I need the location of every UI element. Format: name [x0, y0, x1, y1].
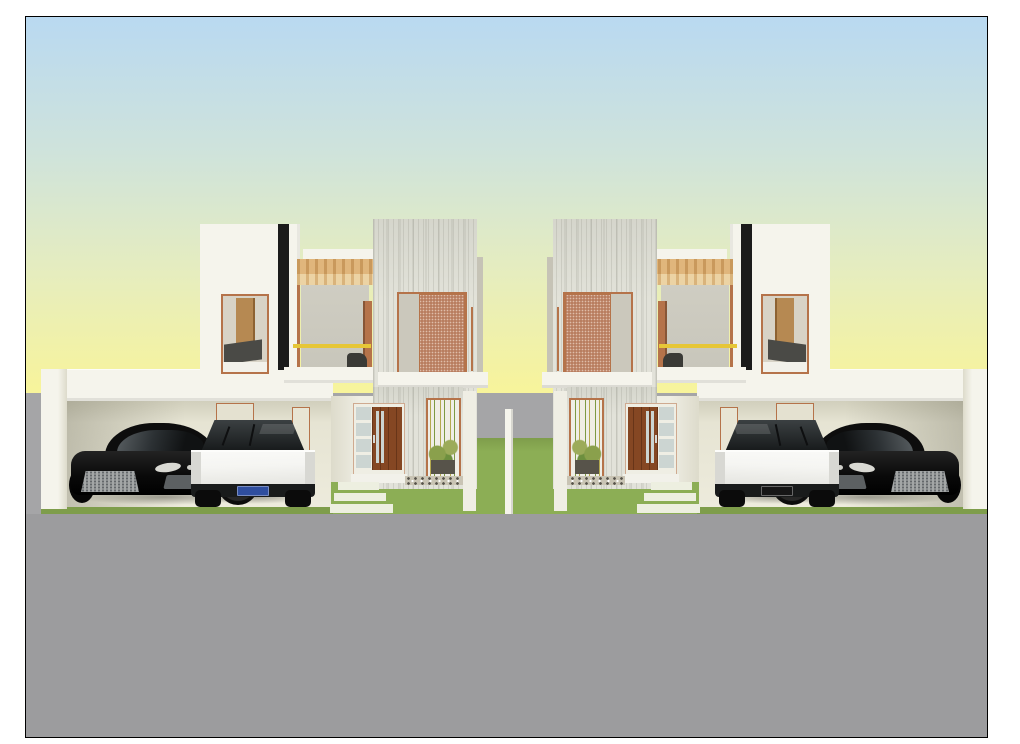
- intermediate-floor-slab: [542, 372, 652, 388]
- white-pickup-truck: [191, 416, 315, 507]
- stepping-pad: [330, 504, 393, 513]
- truck-wheel: [285, 490, 311, 507]
- side-copper-trim: [471, 307, 473, 371]
- bedroom-bed: [768, 339, 806, 364]
- truck-light-bar: [715, 450, 839, 452]
- pergola-cap-slab: [657, 249, 727, 259]
- perforated-copper-screen: [565, 294, 611, 374]
- pebble-strip: [405, 476, 471, 485]
- stepping-pad: [338, 482, 379, 490]
- bedroom-wardrobe: [236, 298, 254, 347]
- coupe-grille: [891, 471, 949, 492]
- side-return-wall-lower: [554, 391, 567, 511]
- balcony-floor-slab: [655, 367, 746, 383]
- bamboo-planter-window: [426, 398, 461, 480]
- tower-black-stripe: [278, 224, 289, 370]
- stepping-pad: [651, 482, 692, 490]
- planter-table: [575, 460, 599, 474]
- window-sill: [223, 362, 267, 372]
- truck-body-facet: [191, 450, 201, 486]
- pergola-timber-fascia: [297, 274, 373, 285]
- carport-side-wall: [963, 369, 988, 509]
- coupe-grille: [81, 471, 139, 492]
- truck-glass-highlight: [733, 424, 771, 434]
- carport-side-wall: [41, 369, 67, 509]
- side-copper-trim: [557, 307, 559, 371]
- pergola-timber-fascia: [657, 274, 733, 285]
- truck-body-facet: [829, 450, 839, 486]
- truck-wheel: [809, 490, 835, 507]
- truck-light-bar: [191, 450, 315, 452]
- bedroom-wardrobe: [775, 298, 793, 347]
- pergola-timber-slats: [657, 259, 733, 274]
- door-sidelight: [356, 407, 371, 470]
- balcony-yellow-railing: [659, 344, 737, 348]
- window-sill: [763, 362, 807, 372]
- bedroom-window: [221, 294, 269, 374]
- entry-door-assembly: [353, 403, 405, 475]
- door-glass-strip: [376, 411, 379, 463]
- stepping-pad: [637, 504, 700, 513]
- render-viewport: [25, 16, 988, 738]
- door-glass-strip: [651, 411, 654, 463]
- upper-screen-window: [563, 292, 633, 376]
- perforated-copper-screen: [419, 294, 465, 374]
- timber-entry-door: [628, 407, 658, 470]
- truck-body: [191, 450, 315, 486]
- pergola-timber-slats: [297, 259, 373, 274]
- pergola-cap-slab: [303, 249, 373, 259]
- door-handle: [373, 435, 375, 443]
- bedroom-window: [761, 294, 809, 374]
- tower-black-stripe: [741, 224, 752, 370]
- stepping-pad: [334, 493, 386, 501]
- license-plate: [237, 486, 269, 496]
- pebble-strip: [559, 476, 625, 485]
- door-glass-strip: [381, 411, 384, 463]
- truck-body-facet: [305, 450, 315, 486]
- white-pickup-truck: [715, 416, 839, 507]
- door-sidelight: [659, 407, 674, 470]
- foreground-road: [26, 514, 987, 738]
- balcony-floor-slab: [284, 367, 375, 383]
- bedroom-bed: [224, 339, 262, 364]
- property-divider-wall: [505, 409, 513, 514]
- truck-glass-highlight: [259, 424, 297, 434]
- truck-body-facet: [715, 450, 725, 486]
- planter-table: [431, 460, 455, 474]
- balcony-yellow-railing: [293, 344, 371, 348]
- bamboo-planter-window: [569, 398, 604, 480]
- entry-door-assembly: [625, 403, 677, 475]
- upper-screen-window: [397, 292, 467, 376]
- truck-wheel: [195, 490, 221, 507]
- intermediate-floor-slab: [378, 372, 488, 388]
- stepping-pad: [644, 493, 696, 501]
- door-glass-strip: [646, 411, 649, 463]
- side-return-wall-lower: [463, 391, 476, 511]
- truck-body: [715, 450, 839, 486]
- truck-wheel: [719, 490, 745, 507]
- house-left: [41, 217, 486, 517]
- timber-entry-door: [372, 407, 402, 470]
- door-handle: [655, 435, 657, 443]
- license-plate: [761, 486, 793, 496]
- house-right: [544, 217, 988, 517]
